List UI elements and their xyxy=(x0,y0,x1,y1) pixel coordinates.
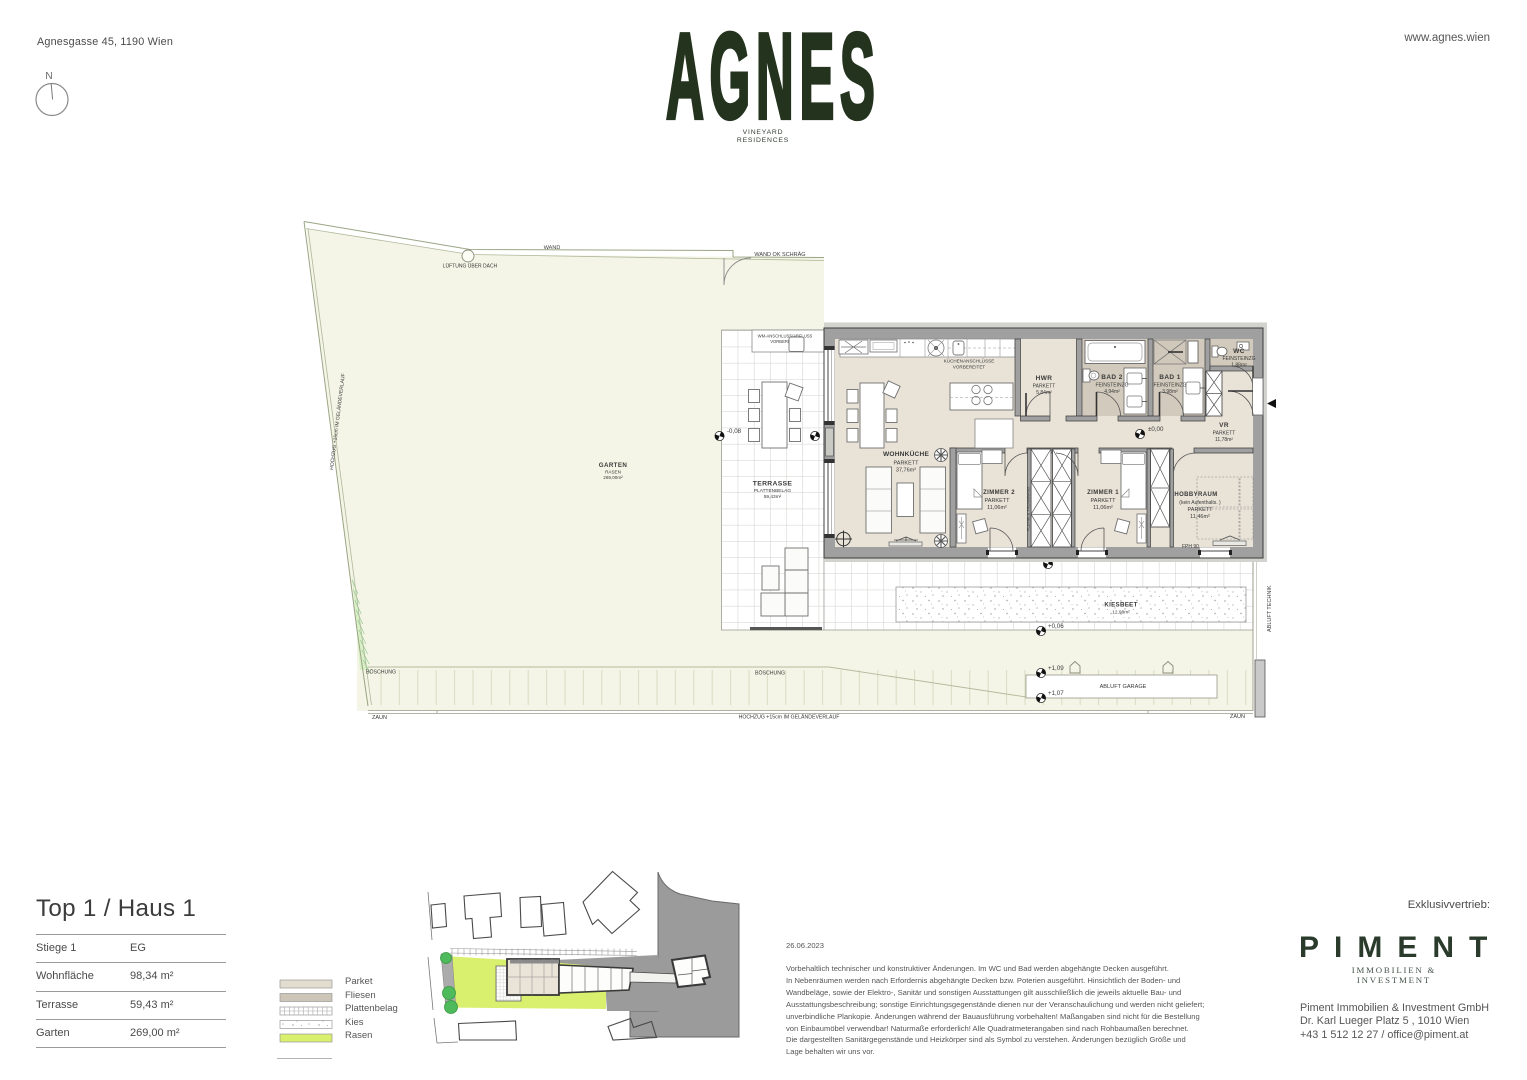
svg-text:LÜFTUNG ÜBER DACH: LÜFTUNG ÜBER DACH xyxy=(443,263,498,270)
svg-text:HOBBYRAUM: HOBBYRAUM xyxy=(1174,492,1217,498)
svg-text:ZIMMER 2: ZIMMER 2 xyxy=(983,490,1015,496)
svg-text:PARKETT: PARKETT xyxy=(1033,384,1056,390)
svg-text:BÖSCHUNG: BÖSCHUNG xyxy=(755,670,785,677)
svg-text:VR: VR xyxy=(1219,422,1229,429)
svg-text:WC: WC xyxy=(1233,348,1245,355)
svg-text:5,84m²: 5,84m² xyxy=(1036,390,1052,396)
svg-text:WOHNKÜCHE: WOHNKÜCHE xyxy=(883,449,930,458)
svg-text:GARTEN: GARTEN xyxy=(599,462,628,469)
svg-text:KÜCHENANSCHLÜSSE: KÜCHENANSCHLÜSSE xyxy=(944,358,995,364)
svg-text:269,00m²: 269,00m² xyxy=(603,475,623,480)
svg-text:PLATTENBELAG: PLATTENBELAG xyxy=(754,488,792,494)
svg-text:11,06m²: 11,06m² xyxy=(987,505,1007,511)
svg-text:BAD 2: BAD 2 xyxy=(1101,374,1123,381)
svg-text:ABLUFT GARAGE: ABLUFT GARAGE xyxy=(1100,684,1147,690)
svg-text:HOCHZUG +15cm IM GELÄNDEVERLAU: HOCHZUG +15cm IM GELÄNDEVERLAUF xyxy=(739,714,840,721)
svg-text:AGNES: AGNES xyxy=(666,8,880,144)
svg-text:12,98m²: 12,98m² xyxy=(1112,610,1130,616)
svg-text:TERRASSE: TERRASSE xyxy=(753,481,793,488)
svg-text:FEINSTEINZG: FEINSTEINZG xyxy=(1153,383,1186,389)
svg-text:PARKETT: PARKETT xyxy=(1091,498,1117,504)
svg-text:PARKETT: PARKETT xyxy=(985,498,1011,504)
svg-text:WAND: WAND xyxy=(544,245,561,251)
svg-text:(kein Aufenthalts. ): (kein Aufenthalts. ) xyxy=(1179,500,1221,506)
svg-text:FEINSTEINZG: FEINSTEINZG xyxy=(1095,383,1128,389)
svg-text:+1,09: +1,09 xyxy=(1048,665,1064,672)
svg-text:PARKETT: PARKETT xyxy=(894,461,920,467)
svg-text:RASEN: RASEN xyxy=(605,470,621,475)
svg-text:PARKETT: PARKETT xyxy=(1188,507,1214,513)
svg-text:37,76m²: 37,76m² xyxy=(896,468,916,474)
svg-text:N: N xyxy=(45,71,52,82)
svg-text:PARKETT: PARKETT xyxy=(1213,431,1236,437)
svg-text:FPH 90: FPH 90 xyxy=(1182,544,1199,550)
svg-text:+1,07: +1,07 xyxy=(1048,690,1064,697)
svg-text:11,46m²: 11,46m² xyxy=(1190,514,1210,520)
svg-text:4,94m²: 4,94m² xyxy=(1104,389,1120,395)
svg-text:11,78m²: 11,78m² xyxy=(1215,437,1233,443)
svg-text:1,88m²: 1,88m² xyxy=(1231,363,1247,369)
svg-text:3,98m²: 3,98m² xyxy=(1162,389,1178,395)
svg-text:HWR: HWR xyxy=(1036,375,1053,382)
svg-text:BAD 1: BAD 1 xyxy=(1159,374,1181,381)
svg-text:ZAUN: ZAUN xyxy=(372,715,387,721)
svg-text:ZAUN: ZAUN xyxy=(1230,714,1245,720)
svg-text:FLEXIBLE TRENNWAND: FLEXIBLE TRENNWAND xyxy=(1026,486,1031,531)
svg-text:59,43m²: 59,43m² xyxy=(764,494,782,500)
svg-text:KIESBEET: KIESBEET xyxy=(1104,602,1137,609)
svg-text:VORBEREITET: VORBEREITET xyxy=(953,365,986,370)
svg-text:+0,06: +0,06 xyxy=(1048,623,1064,630)
svg-text:WAND OK SCHRÄG: WAND OK SCHRÄG xyxy=(754,251,805,258)
svg-text:-0,08: -0,08 xyxy=(727,428,742,435)
svg-text:ZIMMER 1: ZIMMER 1 xyxy=(1087,490,1119,496)
svg-text:11,06m²: 11,06m² xyxy=(1093,505,1113,511)
svg-text:ABLUFT TECHNIK: ABLUFT TECHNIK xyxy=(1267,585,1273,632)
svg-text:FEINSTEINZG: FEINSTEINZG xyxy=(1222,356,1255,362)
svg-text:WM-ANSCHLUSS/ABFLUSS: WM-ANSCHLUSS/ABFLUSS xyxy=(758,334,813,339)
svg-text:BÖSCHUNG: BÖSCHUNG xyxy=(366,669,396,676)
svg-text:±0,00: ±0,00 xyxy=(1148,426,1164,433)
